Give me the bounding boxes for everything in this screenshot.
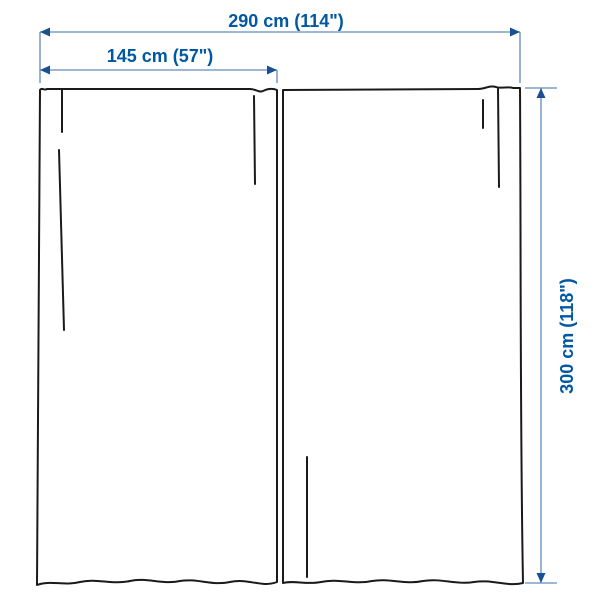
arrow-left-icon (40, 28, 50, 37)
curtain-panels (37, 86, 523, 585)
arrow-right-icon (267, 66, 277, 75)
right-curtain-panel (283, 86, 523, 584)
diagram-canvas: 290 cm (114") 145 cm (57") 300 cm (118") (0, 0, 600, 600)
arrow-left-icon (40, 66, 50, 75)
total-width-label: 290 cm (114") (228, 11, 344, 31)
panel-width-label: 145 cm (57") (107, 46, 214, 66)
left-curtain-panel (37, 89, 277, 585)
curtain-dimension-diagram: 290 cm (114") 145 cm (57") 300 cm (118") (0, 0, 600, 600)
arrow-up-icon (537, 88, 546, 98)
arrow-right-icon (510, 28, 520, 37)
height-label: 300 cm (118") (557, 278, 577, 394)
arrow-down-icon (537, 573, 546, 583)
